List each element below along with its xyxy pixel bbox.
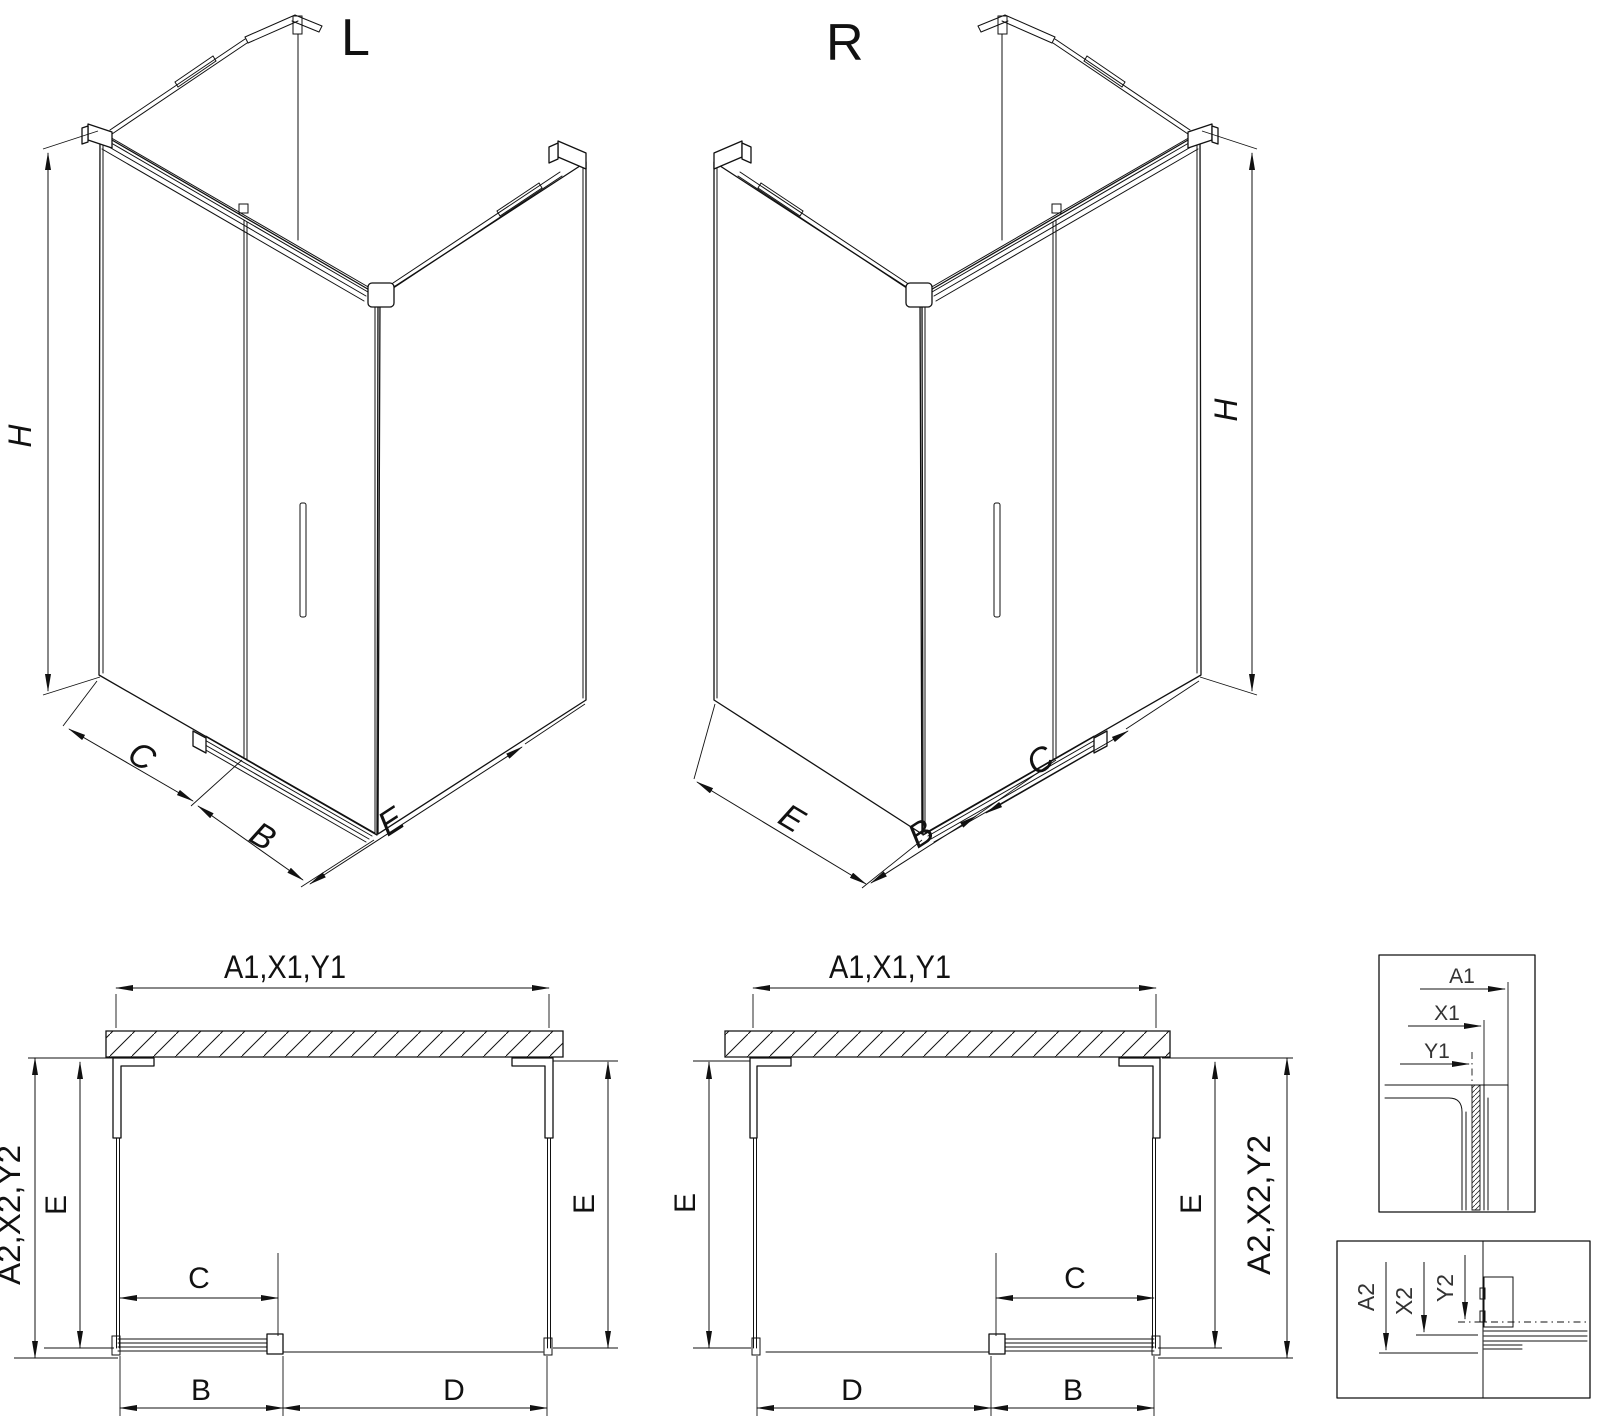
dim-height-label: H xyxy=(1208,398,1244,422)
dim-y1-label: Y1 xyxy=(1424,1040,1450,1063)
dim-y2-label: Y2 xyxy=(1432,1274,1458,1302)
stabilizer-bar-left xyxy=(110,39,247,134)
detail-width-box: A1 X1 Y1 xyxy=(1379,955,1535,1212)
dim-x2-label: X2 xyxy=(1391,1287,1417,1315)
dim-fixed-d: D xyxy=(757,1356,1154,1416)
corner-connector xyxy=(906,283,932,307)
glass-wall-left xyxy=(117,1138,120,1348)
dim-width-top: A1,X1,Y1 xyxy=(753,949,1156,1028)
door-track-plan xyxy=(752,1334,1160,1355)
side-panel-glass xyxy=(714,162,922,834)
dim-depth-overall-label: A2,X2,Y2 xyxy=(0,1145,27,1285)
wall-bracket-right xyxy=(1188,124,1218,148)
iso-figure-right: R xyxy=(694,14,1257,888)
wall-profile-left xyxy=(113,1058,154,1138)
plan-view-left: A1,X1,Y1 A2,X2,Y2 E E C xyxy=(0,949,618,1416)
front-wall-glass xyxy=(922,133,1201,835)
technical-drawing: L xyxy=(0,0,1600,1423)
ceiling-bracket xyxy=(978,15,1055,240)
dim-width-top: A1,X1,Y1 xyxy=(116,949,549,1028)
wall-profile-left xyxy=(750,1058,791,1138)
side-panel-glass xyxy=(378,162,586,834)
dim-a1-label: A1 xyxy=(1449,965,1475,988)
stabilizer-bar-right xyxy=(1053,39,1190,134)
dim-fixed-label: D xyxy=(443,1374,465,1407)
dim-side-label: E xyxy=(772,796,811,840)
door-track-plan xyxy=(112,1334,552,1355)
dim-width-top-label: A1,X1,Y1 xyxy=(829,949,951,985)
ceiling-bracket xyxy=(245,15,322,240)
dim-door-label: B xyxy=(243,814,282,858)
corner-connector xyxy=(368,283,394,307)
dim-depth-right: E xyxy=(553,1061,618,1348)
dim-depth-right: E xyxy=(1158,1062,1222,1348)
dim-depth-right-label: E xyxy=(1175,1194,1208,1214)
dim-depth-left-label: E xyxy=(40,1195,73,1215)
dim-depth-right-label: E xyxy=(568,1194,601,1214)
dim-height: H xyxy=(1200,131,1257,695)
wall-profile-right xyxy=(512,1058,553,1138)
dim-a2-label: A2 xyxy=(1353,1283,1379,1311)
wall-bracket-left xyxy=(82,124,112,148)
dim-fixed-d: D xyxy=(283,1374,547,1408)
dim-depth-left: E xyxy=(40,1062,114,1348)
front-wall-glass xyxy=(99,133,378,835)
wall-profile-right xyxy=(1119,1058,1160,1138)
dim-depth-left-label: E xyxy=(669,1193,702,1213)
drawing-sheet: L xyxy=(0,0,1600,1423)
dim-door-b: B xyxy=(991,1374,1154,1408)
dim-door-label: B xyxy=(191,1374,211,1407)
dim-door-glass-label: C xyxy=(188,1262,210,1295)
iso-figure-left: L xyxy=(2,9,586,887)
wall-bracket-right xyxy=(549,141,586,169)
glass-wall-right xyxy=(548,1138,551,1348)
dim-door-glass-c: C xyxy=(996,1253,1154,1336)
dim-fixed-label: D xyxy=(841,1374,863,1407)
dim-door-label: B xyxy=(1063,1374,1083,1407)
dim-door-glass-c: C xyxy=(120,1253,278,1336)
detail-depth-box: A2 X2 Y2 xyxy=(1337,1241,1590,1398)
plan-view-right: A1,X1,Y1 A2,X2,Y2 E E C xyxy=(669,949,1293,1416)
glass-wall-right xyxy=(1153,1138,1156,1348)
glass-section xyxy=(1472,1085,1480,1210)
dim-x1-label: X1 xyxy=(1434,1002,1460,1025)
wall-section xyxy=(725,1031,1170,1057)
dim-door-glass-label: C xyxy=(1064,1262,1086,1295)
wall-section xyxy=(106,1031,563,1057)
iso-left-label: L xyxy=(341,9,370,67)
dim-height-label: H xyxy=(2,424,38,448)
wall-bracket-left xyxy=(714,141,751,169)
dim-depth-left: E xyxy=(669,1061,751,1348)
dim-depth-overall-label: A2,X2,Y2 xyxy=(1241,1135,1277,1275)
dim-door-b: B xyxy=(120,1356,547,1416)
dim-height: H xyxy=(2,131,100,695)
dim-width-top-label: A1,X1,Y1 xyxy=(224,949,346,985)
iso-right-label: R xyxy=(826,14,864,72)
glass-wall-left xyxy=(754,1138,757,1348)
dim-fixed-label: C xyxy=(121,734,162,779)
